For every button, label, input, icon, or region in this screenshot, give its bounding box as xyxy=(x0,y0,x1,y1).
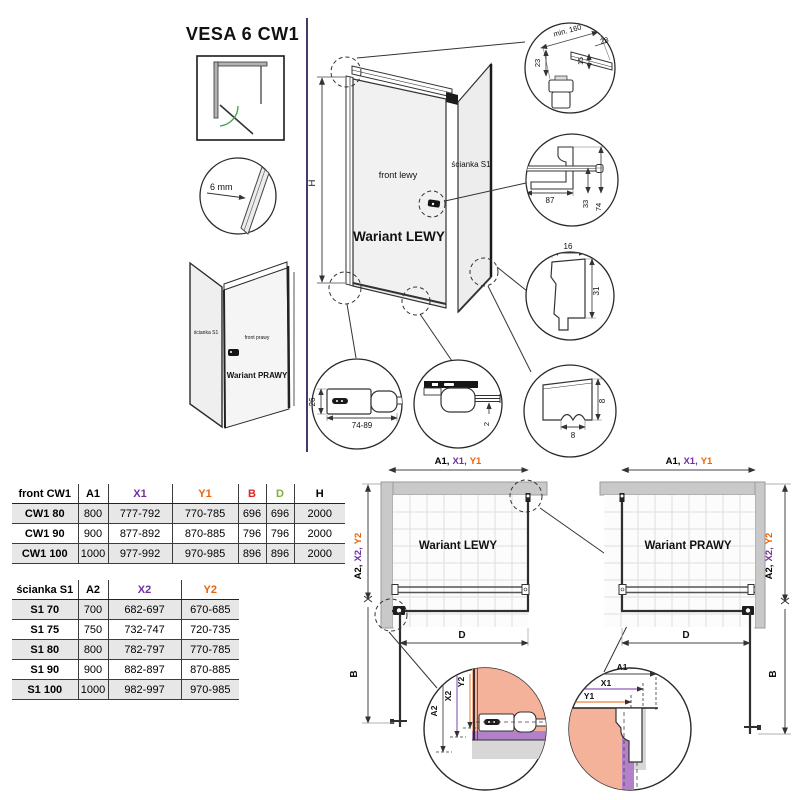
table-cell: 800 xyxy=(78,640,108,660)
table-cell: 877-892 xyxy=(108,524,172,544)
row-label: CW1 100 xyxy=(12,544,78,564)
dim-8-horizontal: 8 xyxy=(571,431,576,440)
table-row: S1 90900882-897870-885 xyxy=(12,660,239,680)
table-row: CW1 90900877-892870-8857967962000 xyxy=(12,524,345,544)
plan-left-top-dim: A1,X1,Y1 xyxy=(435,456,482,467)
dim-26: 26 xyxy=(308,397,317,406)
dim-74-89: 74-89 xyxy=(352,421,373,430)
column-header: D xyxy=(266,484,294,504)
table-cell: 896 xyxy=(238,544,266,564)
detail-door-bottom: 2 xyxy=(414,360,502,448)
row-label: S1 80 xyxy=(12,640,78,660)
dim-87: 87 xyxy=(546,196,555,205)
table-cell: 696 xyxy=(238,504,266,524)
detail-wall-bracket: 87 33 74 xyxy=(526,134,618,226)
detail-handle: 26 74-89 xyxy=(308,359,412,449)
zoom-left-y2: Y2 xyxy=(456,677,466,688)
small-variant-label: Wariant PRAWY xyxy=(227,371,288,380)
table-row: CW1 1001000977-992970-9858968962000 xyxy=(12,544,345,564)
table-cell: 670-685 xyxy=(181,600,239,620)
table-cell: 870-885 xyxy=(172,524,238,544)
zoom-left-a2: A2 xyxy=(429,705,439,716)
table-cell: 682-697 xyxy=(108,600,181,620)
plan-right-side-dim: A2,X2,Y2 xyxy=(764,533,775,580)
wall-left xyxy=(381,482,393,628)
table-cell: 870-885 xyxy=(181,660,239,680)
plan-left-door-dim: B xyxy=(349,670,360,677)
dim-23: 23 xyxy=(533,59,542,67)
table-cell: 1000 xyxy=(78,544,108,564)
column-header: A1 xyxy=(78,484,108,504)
dim-15: 15 xyxy=(578,57,585,65)
dim-31: 31 xyxy=(592,286,601,295)
handle-icon xyxy=(228,349,239,356)
table-cell: 2000 xyxy=(294,504,345,524)
glass-thickness-detail: 6 mm xyxy=(200,158,276,234)
main-variant-label: Wariant LEWY xyxy=(353,229,445,244)
table-cell: 896 xyxy=(266,544,294,564)
small-front-label: front prawy xyxy=(245,335,270,341)
plan-left-side-dim: A2,X2,Y2 xyxy=(353,533,364,580)
table-cell: 777-792 xyxy=(108,504,172,524)
table-row: S1 75750732-747720-735 xyxy=(12,620,239,640)
plan-right-top-dim: A1,X1,Y1 xyxy=(666,456,713,467)
table-cell: 977-992 xyxy=(108,544,172,564)
main-side-label: ścianka S1 xyxy=(451,160,491,169)
table-cell: 882-897 xyxy=(108,660,181,680)
row-label: CW1 80 xyxy=(12,504,78,524)
detail-top-corner: min. 160 28 15 23 xyxy=(525,23,615,113)
small-3d-view: ścianka S1 front prawy Wariant PRAWY xyxy=(190,262,294,428)
spec-table: ścianka S1A2X2Y2S1 70700682-697670-685S1… xyxy=(12,580,239,700)
spec-table: front CW1A1X1Y1BDHCW1 80800777-792770-78… xyxy=(12,484,345,564)
row-label: S1 100 xyxy=(12,680,78,700)
table-row: S1 80800782-797770-785 xyxy=(12,640,239,660)
column-header: X1 xyxy=(108,484,172,504)
plan-schematic-icon xyxy=(197,56,284,140)
table-row: CW1 80800777-792770-7856966962000 xyxy=(12,504,345,524)
column-header: ścianka S1 xyxy=(12,580,78,600)
column-header: front CW1 xyxy=(12,484,78,504)
side-panel-glass xyxy=(458,64,491,312)
row-label: S1 75 xyxy=(12,620,78,640)
table-row: S1 70700682-697670-685 xyxy=(12,600,239,620)
table-row: S1 1001000982-997970-985 xyxy=(12,680,239,700)
zoom-left-x2: X2 xyxy=(443,691,453,702)
table-cell: 970-985 xyxy=(181,680,239,700)
front-cw1-table: front CW1A1X1Y1BDHCW1 80800777-792770-78… xyxy=(12,484,345,564)
table-cell: 1000 xyxy=(78,680,108,700)
table-cell: 2000 xyxy=(294,524,345,544)
column-header: A2 xyxy=(78,580,108,600)
dim-74: 74 xyxy=(594,203,603,211)
row-label: S1 90 xyxy=(12,660,78,680)
main-front-label: front lewy xyxy=(379,170,418,180)
plan-left-variant: Wariant LEWY xyxy=(419,540,497,552)
dim-2: 2 xyxy=(482,422,491,426)
dim-33: 33 xyxy=(581,200,590,208)
scianka-s1-table: ścianka S1A2X2Y2S1 70700682-697670-685S1… xyxy=(12,580,239,700)
column-header: B xyxy=(238,484,266,504)
zoom-right-a1: A1 xyxy=(617,662,628,672)
table-cell: 900 xyxy=(78,524,108,544)
dim-16: 16 xyxy=(564,242,573,251)
plan-right-door-dim: B xyxy=(768,670,779,677)
table-cell: 696 xyxy=(266,504,294,524)
column-header: Y1 xyxy=(172,484,238,504)
plan-right-variant: Wariant PRAWY xyxy=(644,540,731,552)
table-cell: 782-797 xyxy=(108,640,181,660)
table-cell: 750 xyxy=(78,620,108,640)
row-label: S1 70 xyxy=(12,600,78,620)
detail-profile: 16 31 xyxy=(526,242,614,340)
column-header: Y2 xyxy=(181,580,239,600)
table-cell: 732-747 xyxy=(108,620,181,640)
front-door-glass xyxy=(353,79,446,308)
wall-top xyxy=(381,482,547,495)
table-cell: 770-785 xyxy=(172,504,238,524)
zoom-circle-left: A2 X2 Y2 xyxy=(424,667,548,790)
table-cell: 796 xyxy=(238,524,266,544)
table-cell: 770-785 xyxy=(181,640,239,660)
table-cell: 2000 xyxy=(294,544,345,564)
main-3d-view: H front lewy ścianka S1 Wariant LEWY xyxy=(307,42,531,372)
column-header: H xyxy=(294,484,345,504)
wall-top xyxy=(600,482,765,495)
zoom-right-y1: Y1 xyxy=(584,691,595,701)
plan-right-width-dim: D xyxy=(682,630,689,641)
table-cell: 982-997 xyxy=(108,680,181,700)
spec-sheet: VESA 6 CW1 xyxy=(0,0,800,800)
zoom-right-x1: X1 xyxy=(601,678,612,688)
table-cell: 900 xyxy=(78,660,108,680)
table-cell: 720-735 xyxy=(181,620,239,640)
detail-seal: 8 8 xyxy=(524,365,616,457)
height-dim-label: H xyxy=(307,179,318,186)
zoom-circle-right: A1 X1 Y1 xyxy=(568,662,691,792)
plan-left-width-dim: D xyxy=(458,630,465,641)
column-header: X2 xyxy=(108,580,181,600)
small-side-label: ścianka S1 xyxy=(194,330,219,336)
table-cell: 800 xyxy=(78,504,108,524)
row-label: CW1 90 xyxy=(12,524,78,544)
table-cell: 700 xyxy=(78,600,108,620)
dim-8-vertical: 8 xyxy=(598,398,607,403)
glass-thickness-label: 6 mm xyxy=(210,182,233,192)
table-cell: 970-985 xyxy=(172,544,238,564)
table-cell: 796 xyxy=(266,524,294,544)
